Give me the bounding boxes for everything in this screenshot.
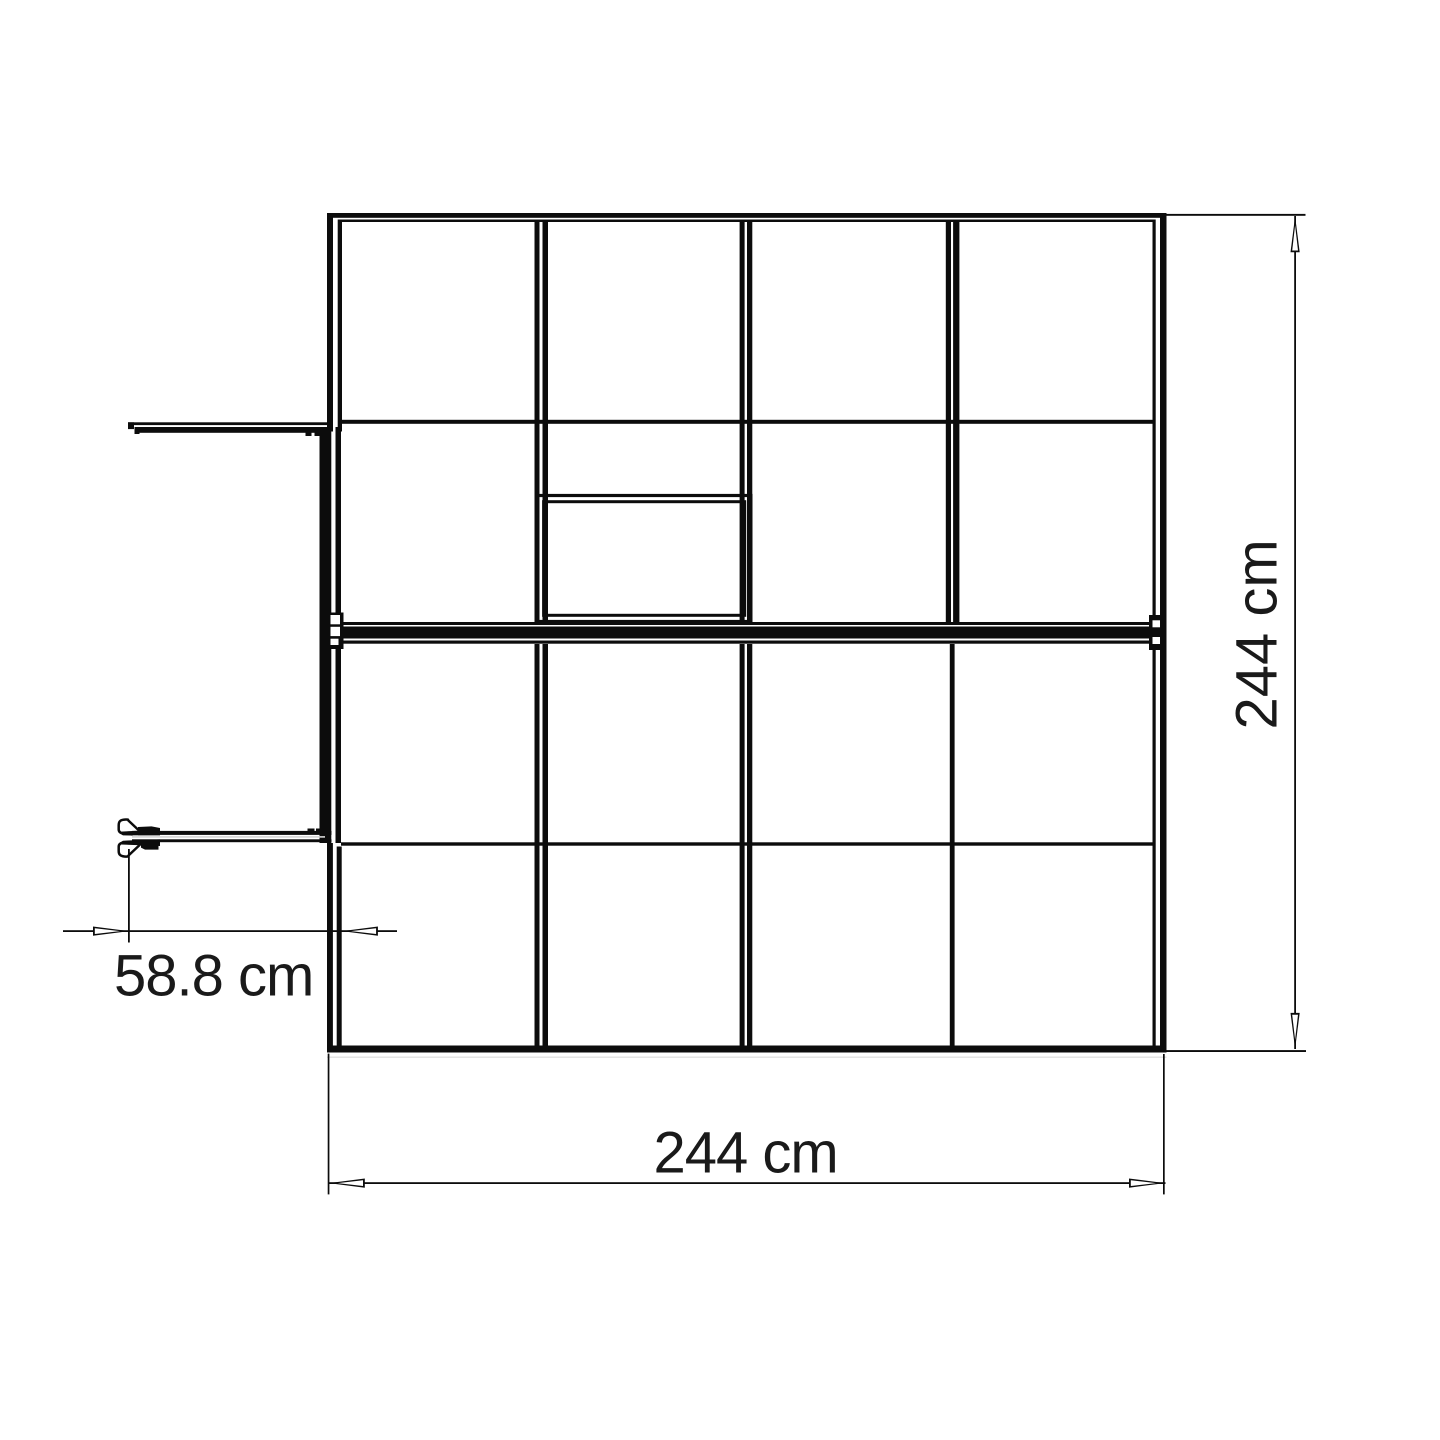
svg-text:244 cm: 244 cm [1225, 539, 1290, 729]
svg-text:244 cm: 244 cm [654, 1121, 838, 1186]
svg-text:58.8 cm: 58.8 cm [114, 944, 313, 1009]
